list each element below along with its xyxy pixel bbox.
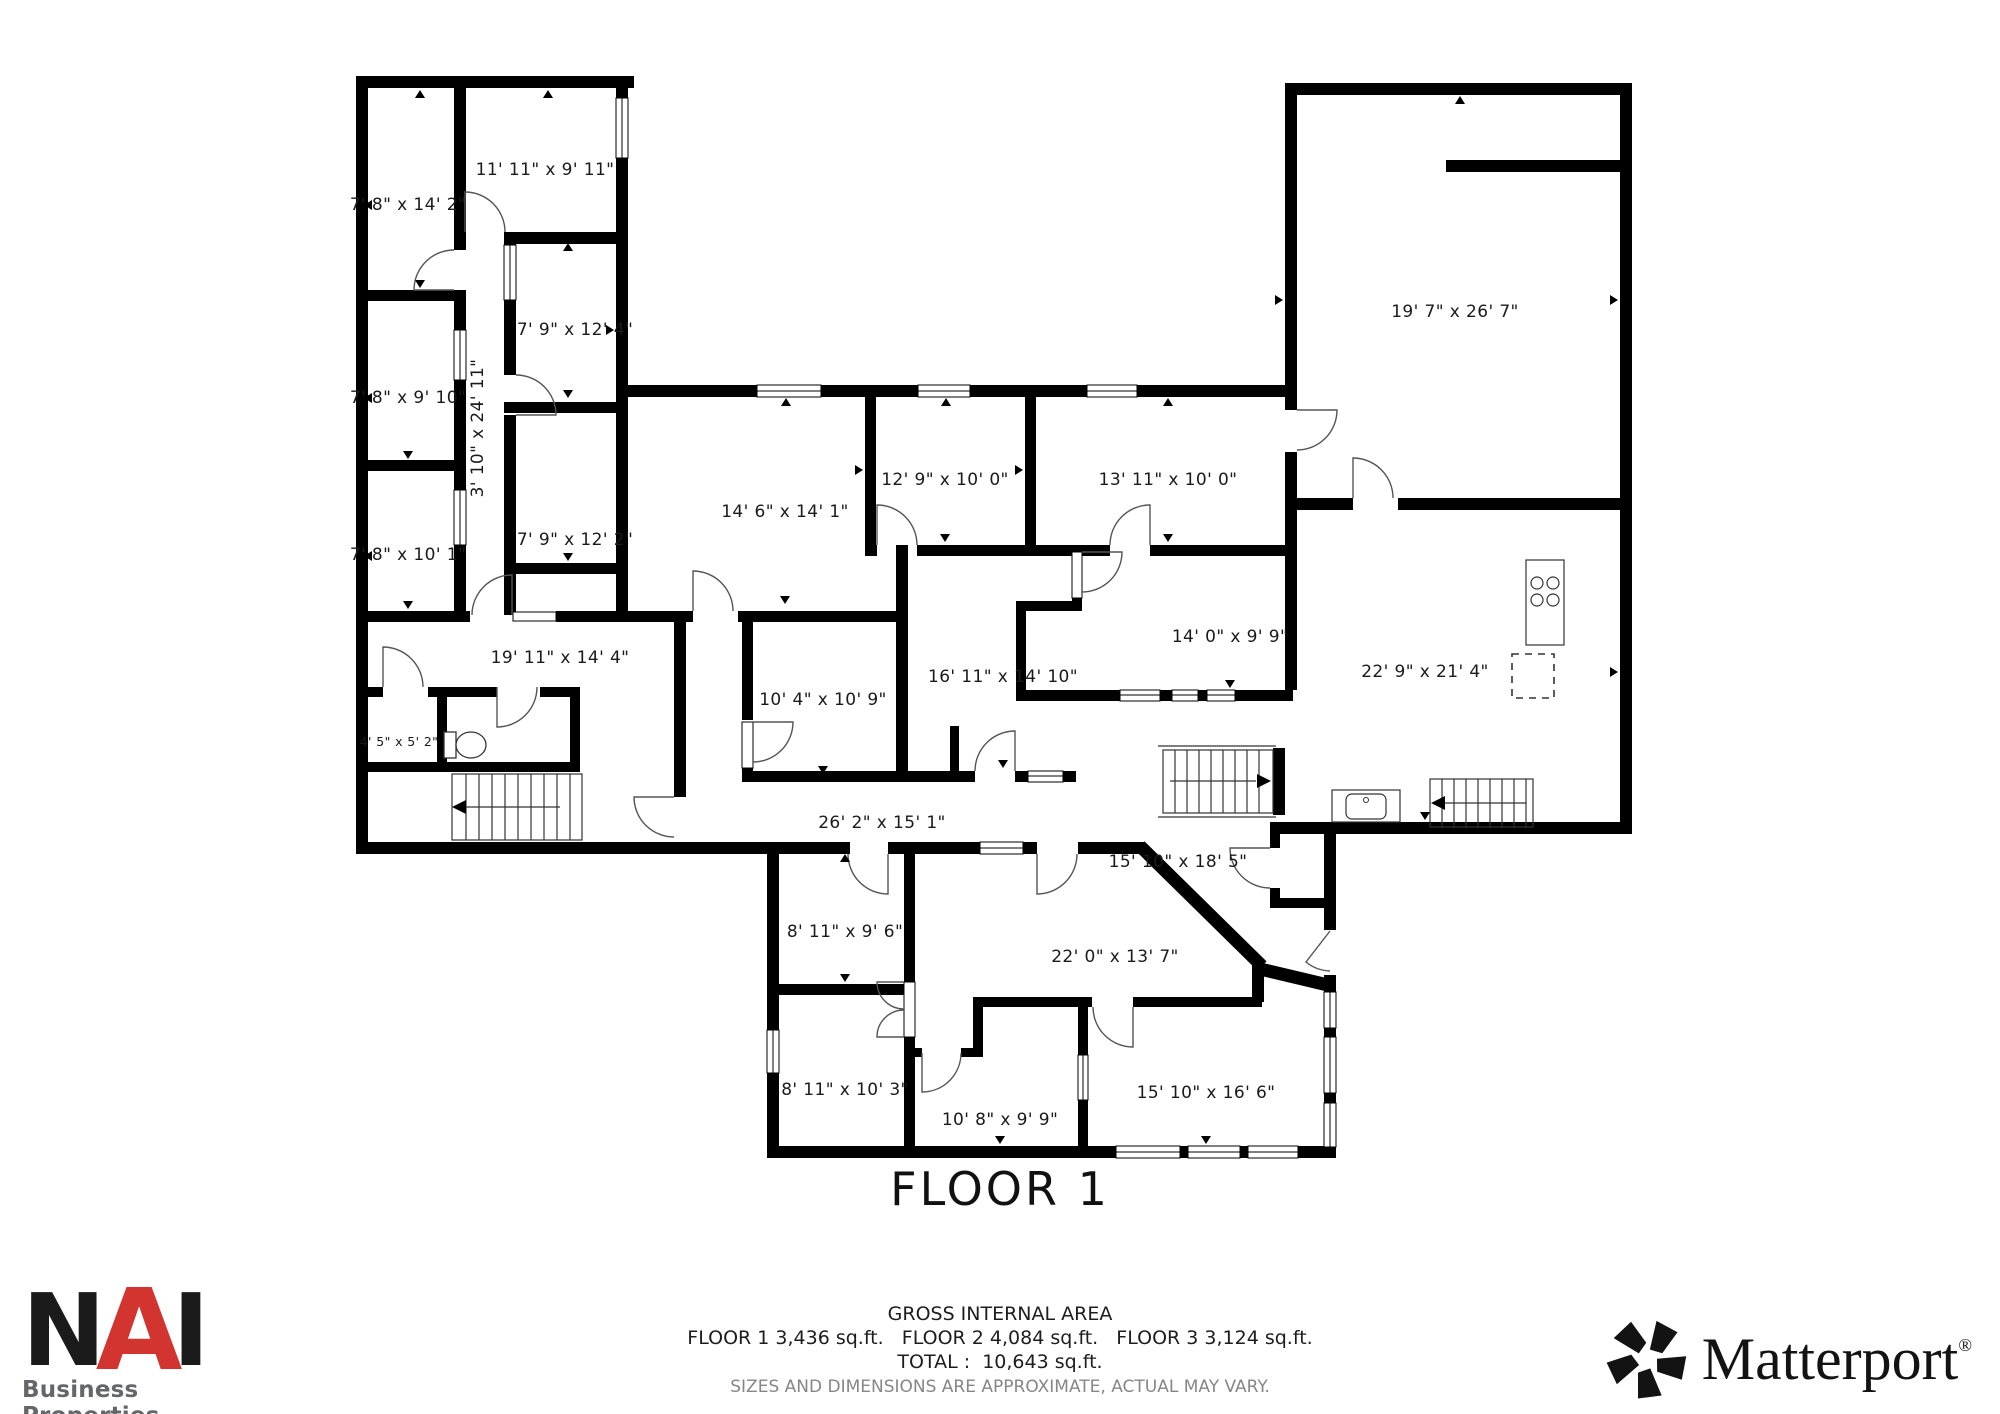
room-label-11: 12' 9" x 10' 0" <box>881 470 1009 490</box>
matterport-wordmark: Matterport® <box>1702 1325 1972 1394</box>
room-label-24: 15' 10" x 16' 6" <box>1137 1083 1276 1103</box>
stove-icon <box>1526 560 1564 645</box>
room-label-18: 26' 2" x 15' 1" <box>818 813 946 833</box>
kitchen-sink-icon <box>1332 790 1400 822</box>
room-labels: 7' 8" x 14' 2"11' 11" x 9' 11"7' 8" x 9'… <box>350 160 1519 1130</box>
room-label-6: 7' 9" x 12' 4" <box>517 320 633 340</box>
room-label-9: 4' 5" x 5' 2" <box>360 734 439 749</box>
room-label-3: 7' 8" x 9' 10" <box>350 388 466 408</box>
floor-plan-page: 7' 8" x 14' 2"11' 11" x 9' 11"7' 8" x 9'… <box>0 0 2000 1414</box>
room-label-1: 7' 8" x 14' 2" <box>350 195 466 215</box>
room-label-2: 11' 11" x 9' 11" <box>476 160 615 180</box>
staircase-center <box>1158 746 1276 817</box>
kitchen-island-icon <box>1512 654 1554 698</box>
room-label-4: 7' 8" x 10' 1" <box>350 545 466 565</box>
room-label-23: 10' 8" x 9' 9" <box>942 1110 1058 1130</box>
registered-mark: ® <box>1958 1335 1972 1355</box>
room-label-5: 3' 10" x 24' 11" <box>468 359 488 498</box>
room-label-15: 16' 11" x 14' 10" <box>928 667 1078 687</box>
room-label-13: 19' 7" x 26' 7" <box>1391 302 1519 322</box>
staircase-right <box>1430 779 1533 827</box>
room-label-20: 22' 0" x 13' 7" <box>1051 947 1179 967</box>
matterport-logo: Matterport® <box>1606 1316 1972 1402</box>
matterport-pinwheel-icon <box>1606 1316 1688 1402</box>
nai-letters: NAI <box>22 1276 252 1379</box>
staircase-left <box>452 774 582 840</box>
nai-logo: NAI Business Properties <box>22 1276 252 1414</box>
room-label-12: 13' 11" x 10' 0" <box>1099 470 1238 490</box>
nai-letter-a: A <box>96 1266 179 1396</box>
room-label-10: 14' 6" x 14' 1" <box>721 502 849 522</box>
room-label-14: 14' 0" x 9' 9" <box>1172 627 1288 647</box>
room-label-19: 15' 10" x 18' 5" <box>1109 852 1248 872</box>
room-label-21: 8' 11" x 9' 6" <box>787 922 903 942</box>
room-label-8: 19' 11" x 14' 4" <box>491 648 630 668</box>
room-label-16: 10' 4" x 10' 9" <box>759 690 887 710</box>
floor-plan-svg: 7' 8" x 14' 2"11' 11" x 9' 11"7' 8" x 9'… <box>0 0 2000 1414</box>
nai-letter-n: N <box>22 1272 102 1389</box>
room-label-17: 22' 9" x 21' 4" <box>1361 662 1489 682</box>
room-label-22: 8' 11" x 10' 3" <box>781 1080 909 1100</box>
floor-caption: FLOOR 1 <box>890 1162 1110 1216</box>
room-label-7: 7' 9" x 12' 2" <box>517 530 633 550</box>
toilet-icon <box>444 732 486 758</box>
